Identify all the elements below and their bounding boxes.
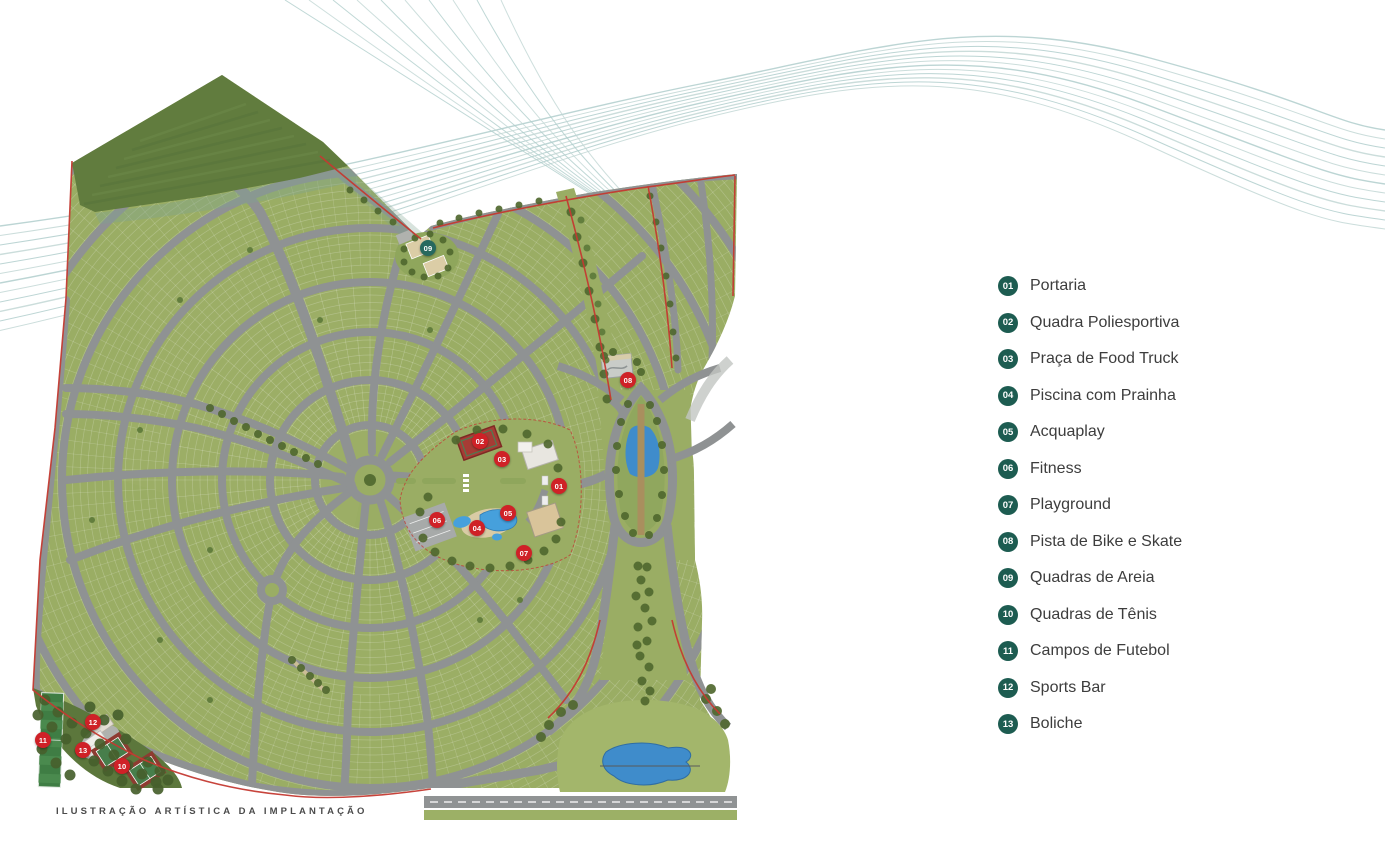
legend-badge: 02 [998, 313, 1018, 333]
gatehouse [542, 496, 548, 505]
legend-badge: 03 [998, 349, 1018, 369]
map-marker-03: 03 [494, 451, 510, 467]
legend-label: Acquaplay [1030, 423, 1105, 441]
legend-label: Quadras de Areia [1030, 569, 1155, 587]
legend-label: Fitness [1030, 460, 1082, 478]
legend-item-10: 10Quadras de Tênis [998, 605, 1182, 625]
legend-badge: 08 [998, 532, 1018, 552]
legend-badge: 13 [998, 714, 1018, 734]
legend-item-07: 07Playground [998, 495, 1182, 515]
legend-item-12: 12Sports Bar [998, 678, 1182, 698]
legend-label: Portaria [1030, 277, 1086, 295]
map-marker-11: 11 [35, 732, 51, 748]
legend-item-01: 01Portaria [998, 276, 1182, 296]
map-marker-07: 07 [516, 545, 532, 561]
legend-item-11: 11Campos de Futebol [998, 641, 1182, 661]
legend-badge: 07 [998, 495, 1018, 515]
legend-item-06: 06Fitness [998, 459, 1182, 479]
legend-badge: 10 [998, 605, 1018, 625]
legend-label: Praça de Food Truck [1030, 350, 1179, 368]
map-marker-04: 04 [469, 520, 485, 536]
map-marker-06: 06 [429, 512, 445, 528]
legend-label: Pista de Bike e Skate [1030, 533, 1182, 551]
map-marker-12: 12 [85, 714, 101, 730]
map-marker-13: 13 [75, 742, 91, 758]
legend-label: Boliche [1030, 715, 1082, 733]
legend-badge: 04 [998, 386, 1018, 406]
legend-badge: 12 [998, 678, 1018, 698]
map-marker-02: 02 [472, 433, 488, 449]
legend-label: Quadra Poliesportiva [1030, 314, 1179, 332]
legend-badge: 09 [998, 568, 1018, 588]
map-marker-05: 05 [500, 505, 516, 521]
legend-label: Sports Bar [1030, 679, 1106, 697]
map-caption: ILUSTRAÇÃO ARTÍSTICA DA IMPLANTAÇÃO [56, 806, 368, 817]
map-marker-08: 08 [620, 372, 636, 388]
legend-badge: 06 [998, 459, 1018, 479]
legend-item-08: 08Pista de Bike e Skate [998, 532, 1182, 552]
map-marker-10: 10 [114, 758, 130, 774]
legend-item-03: 03Praça de Food Truck [998, 349, 1182, 369]
legend-item-02: 02Quadra Poliesportiva [998, 313, 1182, 333]
amenities-legend: 01Portaria 02Quadra Poliesportiva 03Praç… [998, 276, 1182, 734]
legend-label: Piscina com Prainha [1030, 387, 1176, 405]
legend-item-05: 05Acquaplay [998, 422, 1182, 442]
legend-item-13: 13Boliche [998, 714, 1182, 734]
legend-label: Quadras de Tênis [1030, 606, 1157, 624]
legend-badge: 05 [998, 422, 1018, 442]
map-marker-09: 09 [420, 240, 436, 256]
legend-label: Campos de Futebol [1030, 642, 1170, 660]
legend-badge: 11 [998, 641, 1018, 661]
legend-item-04: 04Piscina com Prainha [998, 386, 1182, 406]
legend-label: Playground [1030, 496, 1111, 514]
map-marker-01: 01 [551, 478, 567, 494]
legend-item-09: 09Quadras de Areia [998, 568, 1182, 588]
gatehouse [542, 476, 548, 485]
legend-badge: 01 [998, 276, 1018, 296]
